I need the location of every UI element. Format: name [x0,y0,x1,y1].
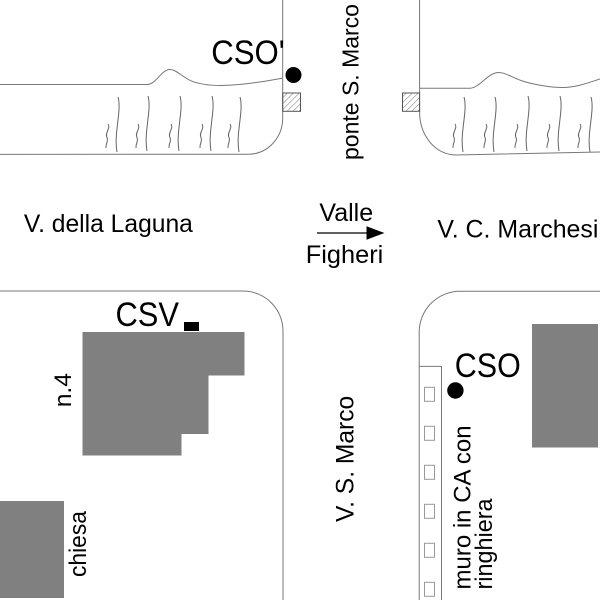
svg-text:chiesa: chiesa [65,510,92,577]
svg-text:CSO': CSO' [211,34,285,72]
svg-text:n.4: n.4 [50,373,77,407]
svg-text:Figheri: Figheri [306,241,384,269]
svg-text:Valle: Valle [319,199,373,227]
svg-text:V. C. Marchesi: V. C. Marchesi [437,216,598,244]
svg-text:CSO: CSO [455,347,521,385]
svg-text:V. della Laguna: V. della Laguna [24,210,193,238]
svg-text:ponte S. Marco: ponte S. Marco [337,4,363,160]
svg-text:CSV: CSV [116,296,180,334]
svg-text:ringhiera: ringhiera [471,498,498,590]
svg-text:V. S. Marco: V. S. Marco [333,396,360,522]
